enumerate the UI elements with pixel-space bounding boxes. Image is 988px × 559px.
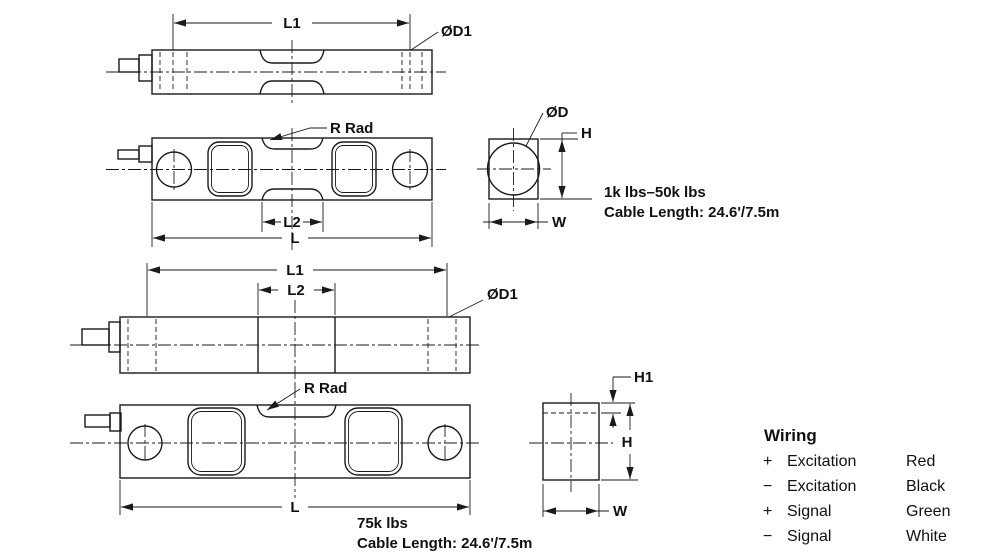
large-model-top-view: L1 L2 ØD1 — [70, 262, 518, 385]
cable-length-note: Cable Length: 24.6'/7.5m — [357, 535, 532, 552]
dim-label-l: L — [290, 499, 299, 516]
wiring-legend: Wiring + Excitation Red − Excitation Bla… — [763, 426, 950, 545]
capacity-note: 75k lbs — [357, 515, 408, 532]
dim-label-d: ØD — [546, 104, 569, 121]
wiring-row-label: Signal — [787, 528, 831, 545]
wiring-row-sign: − — [763, 478, 772, 495]
technical-drawing-svg: L1 ØD1 R Rad L2 L — [0, 0, 988, 559]
dim-label-d1: ØD1 — [441, 23, 472, 40]
wiring-row-color: White — [906, 528, 947, 545]
cable-stub — [85, 415, 110, 427]
small-model-top-view: L1 ØD1 — [106, 14, 472, 104]
cable-stub — [82, 329, 109, 345]
dim-label-r-rad: R Rad — [330, 120, 373, 137]
wiring-row-label: Excitation — [787, 478, 856, 495]
wiring-row-label: Excitation — [787, 453, 856, 470]
cable-connector — [139, 146, 152, 162]
wiring-row-sign: − — [763, 528, 772, 545]
small-model-side-view: R Rad L2 L — [106, 120, 446, 250]
pocket — [332, 142, 376, 196]
wiring-row-label: Signal — [787, 503, 831, 520]
wiring-row-color: Black — [906, 478, 946, 495]
pocket — [208, 142, 252, 196]
cable-stub — [118, 150, 139, 159]
large-model-notes: 75k lbs Cable Length: 24.6'/7.5m — [357, 515, 532, 552]
dim-label-l1: L1 — [283, 15, 301, 32]
cable-stub — [119, 59, 139, 72]
wiring-row-color: Green — [906, 503, 950, 520]
dim-label-l2: L2 — [287, 282, 305, 299]
dim-label-h1: H1 — [634, 369, 653, 386]
dim-label-w: W — [552, 214, 567, 231]
cable-connector — [139, 55, 152, 81]
wiring-row-color: Red — [906, 453, 935, 470]
pocket — [345, 408, 402, 475]
small-model-end-view: ØD H W — [477, 104, 592, 231]
dim-label-h: H — [581, 125, 592, 142]
small-model-notes: 1k lbs–50k lbs Cable Length: 24.6'/7.5m — [604, 184, 779, 221]
dim-label-h: H — [622, 434, 633, 451]
wiring-row-sign: + — [763, 503, 772, 520]
dim-label-d1: ØD1 — [487, 286, 518, 303]
dim-label-r-rad: R Rad — [304, 380, 347, 397]
large-model-end-view: H1 H W — [529, 369, 653, 520]
capacity-note: 1k lbs–50k lbs — [604, 184, 706, 201]
cable-connector — [109, 322, 120, 352]
wiring-title: Wiring — [764, 426, 817, 445]
cable-length-note: Cable Length: 24.6'/7.5m — [604, 204, 779, 221]
dim-label-l: L — [290, 230, 299, 247]
dim-label-l1: L1 — [286, 262, 304, 279]
large-model-side-view: R Rad L — [70, 380, 480, 516]
load-cell-drawing-page: L1 ØD1 R Rad L2 L — [0, 0, 988, 559]
dim-label-l2: L2 — [283, 214, 301, 231]
wiring-row-sign: + — [763, 453, 772, 470]
dim-label-w: W — [613, 503, 628, 520]
pocket — [188, 408, 245, 475]
